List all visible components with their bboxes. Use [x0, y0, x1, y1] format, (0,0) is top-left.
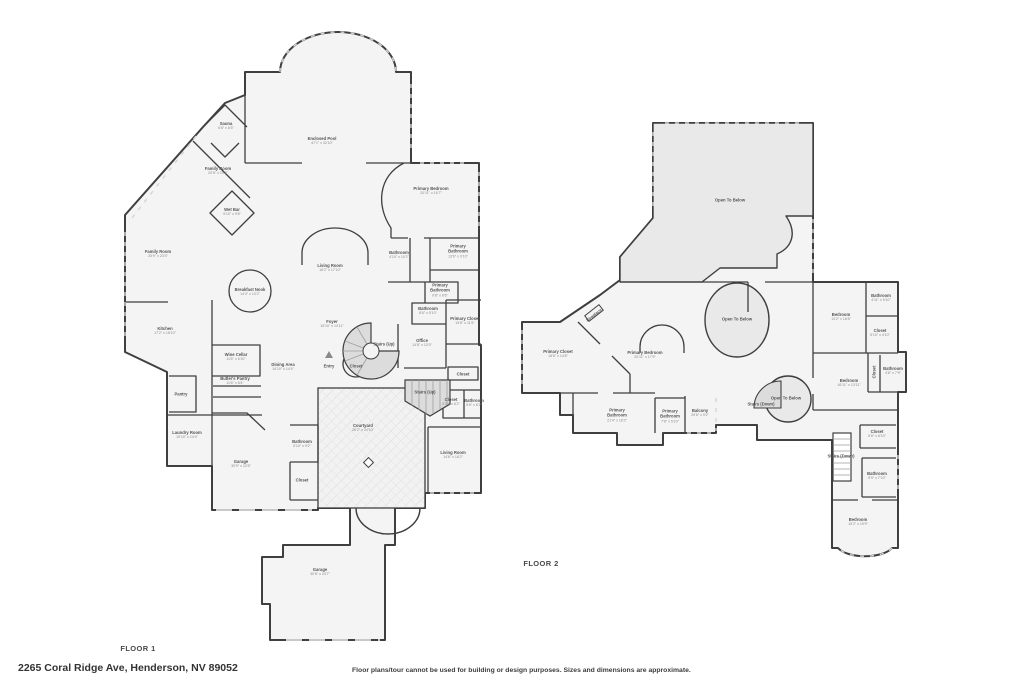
- disclaimer-text: Floor plans/tour cannot be used for buil…: [352, 667, 691, 674]
- floor2-plan: [522, 123, 906, 556]
- floor-plans-drawing: [0, 0, 1024, 683]
- floor1-footprint: [125, 32, 481, 640]
- courtyard-area: [318, 388, 425, 508]
- floor-plan-page: Sauna6'8" x 6'5"Family Room20'6" x 19'3"…: [0, 0, 1024, 683]
- stairs-down: [833, 433, 851, 481]
- floor1-caption: FLOOR 1: [108, 644, 168, 653]
- property-address: 2265 Coral Ridge Ave, Henderson, NV 8905…: [18, 662, 238, 674]
- open-to-below-oval: [705, 283, 769, 357]
- floor2-caption: FLOOR 2: [511, 559, 571, 568]
- floor1-plan: [125, 32, 481, 640]
